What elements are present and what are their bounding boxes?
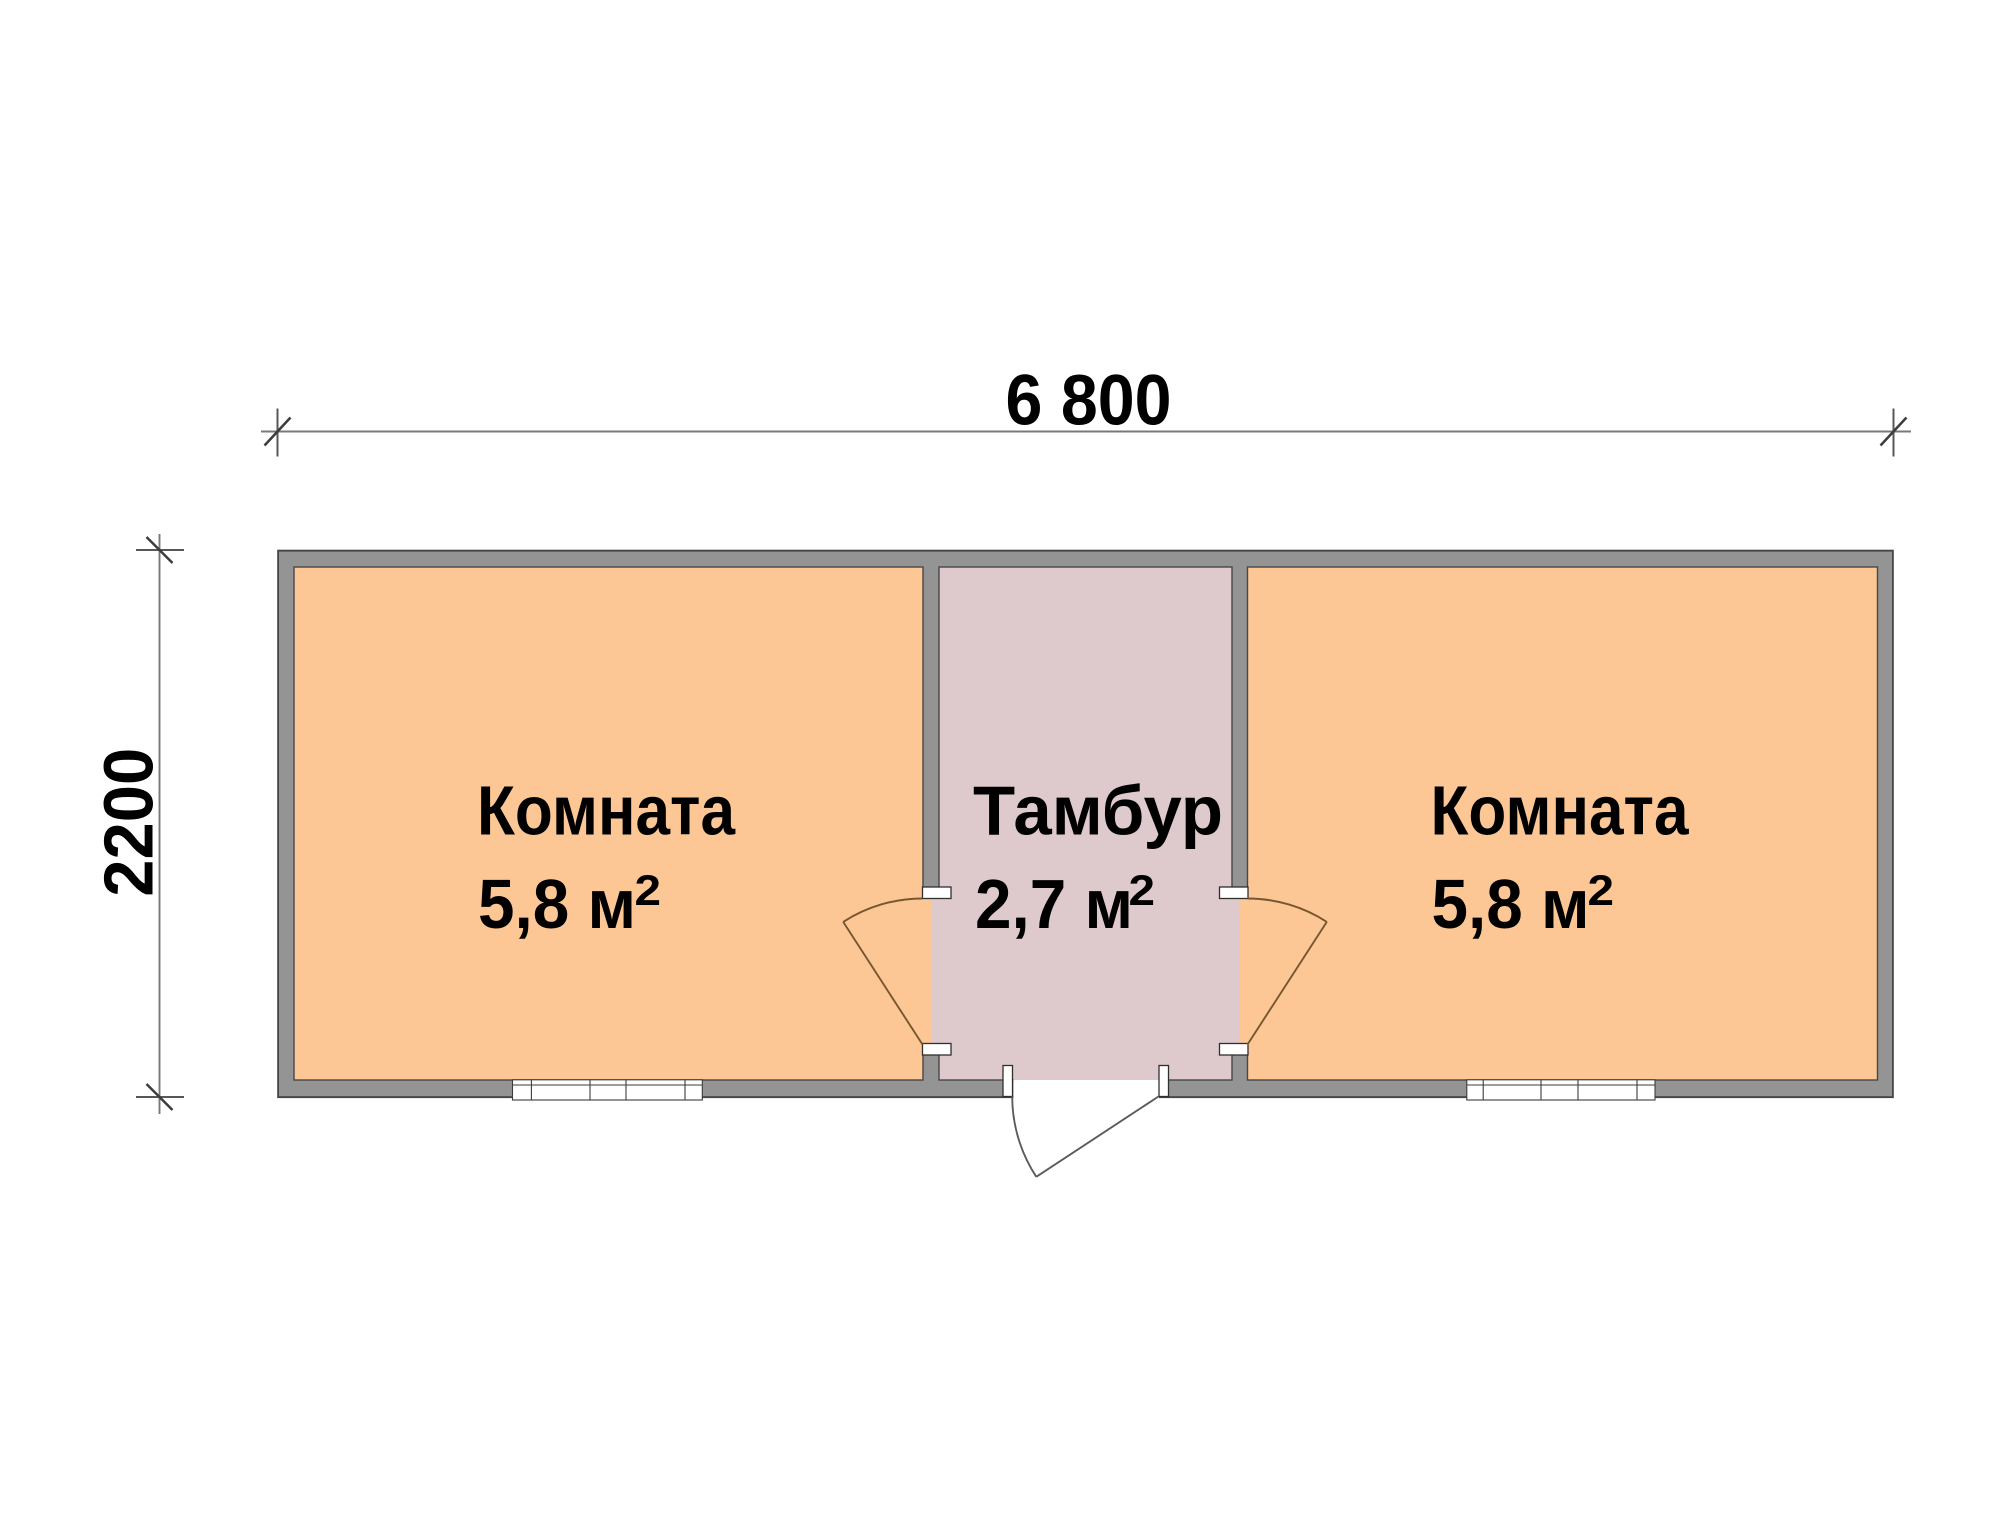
svg-text:Комната: Комната: [477, 772, 736, 850]
svg-text:2: 2: [1129, 868, 1156, 915]
svg-text:5,8 м: 5,8 м: [1432, 865, 1590, 943]
svg-text:5,8 м: 5,8 м: [478, 865, 636, 943]
svg-text:2,7 м: 2,7 м: [975, 865, 1133, 943]
svg-text:2200: 2200: [90, 748, 168, 897]
svg-text:6 800: 6 800: [1006, 362, 1172, 441]
svg-text:2: 2: [635, 868, 662, 915]
svg-text:2: 2: [1588, 868, 1615, 915]
svg-text:Тамбур: Тамбур: [973, 772, 1223, 850]
svg-text:Комната: Комната: [1431, 772, 1690, 850]
